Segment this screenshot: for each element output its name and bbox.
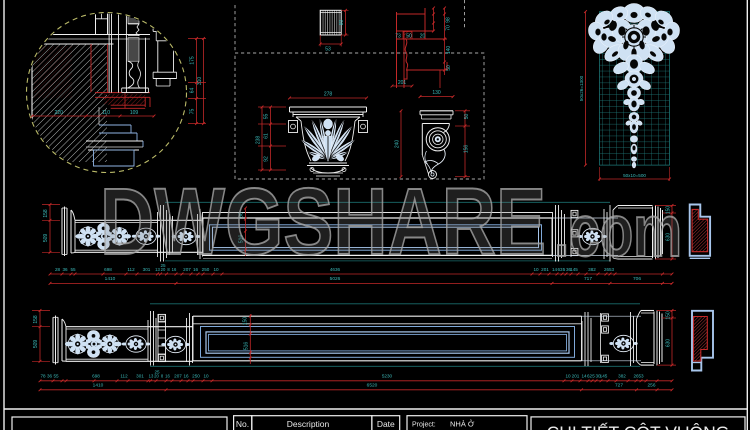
svg-text:10: 10 <box>565 374 571 379</box>
svg-text:509: 509 <box>43 234 49 243</box>
svg-text:717: 717 <box>584 276 592 282</box>
svg-text:50: 50 <box>464 114 470 120</box>
svg-text:64: 64 <box>190 88 196 94</box>
svg-text:175: 175 <box>190 56 196 65</box>
svg-text:110: 110 <box>102 110 110 116</box>
svg-text:310: 310 <box>197 77 203 86</box>
svg-text:50: 50 <box>406 34 412 40</box>
svg-text:220: 220 <box>55 110 64 116</box>
svg-text:DWGSHARE: DWGSHARE <box>100 169 546 275</box>
svg-text:53: 53 <box>325 47 331 53</box>
svg-text:1410: 1410 <box>105 276 116 282</box>
svg-text:98: 98 <box>446 17 452 23</box>
svg-text:150: 150 <box>666 311 672 320</box>
svg-text:NHÀ Ở: NHÀ Ở <box>450 420 475 429</box>
svg-text:509: 509 <box>33 340 39 349</box>
svg-text:20: 20 <box>154 374 159 379</box>
svg-text:75: 75 <box>190 109 196 115</box>
svg-text:61: 61 <box>264 133 270 139</box>
svg-text:130: 130 <box>432 90 441 96</box>
svg-text:250: 250 <box>192 374 200 379</box>
svg-text:6520: 6520 <box>367 382 378 388</box>
svg-text:36: 36 <box>47 374 53 379</box>
svg-text:5026: 5026 <box>330 276 341 282</box>
svg-text:278: 278 <box>324 92 333 98</box>
svg-text:156: 156 <box>464 145 470 154</box>
svg-text:112: 112 <box>120 374 128 379</box>
svg-text:10: 10 <box>203 374 209 379</box>
svg-text:706: 706 <box>633 276 641 282</box>
svg-text:16: 16 <box>165 374 170 379</box>
svg-text:516: 516 <box>244 342 250 351</box>
svg-text:16: 16 <box>183 374 189 379</box>
svg-text:CHI TIẾT CỘT VUÔNG: CHI TIẾT CỘT VUÔNG <box>547 422 730 430</box>
svg-text:28: 28 <box>55 267 61 272</box>
svg-text:727: 727 <box>615 382 623 388</box>
svg-text:50x10=500: 50x10=500 <box>623 173 646 178</box>
svg-text:5230: 5230 <box>382 374 393 379</box>
svg-text:73: 73 <box>395 34 401 40</box>
svg-text:630: 630 <box>666 339 672 348</box>
svg-text:No.: No. <box>236 419 249 429</box>
svg-text:20: 20 <box>420 34 426 40</box>
svg-text:145: 145 <box>600 374 608 379</box>
svg-text:158: 158 <box>43 209 49 218</box>
svg-text:55: 55 <box>264 114 270 120</box>
svg-text:53: 53 <box>638 374 644 379</box>
svg-text:.com: .com <box>554 191 682 272</box>
svg-text:50x26=1300: 50x26=1300 <box>579 75 584 101</box>
svg-text:238: 238 <box>256 136 262 145</box>
svg-text:201: 201 <box>572 374 580 379</box>
svg-text:55: 55 <box>53 374 59 379</box>
svg-text:92: 92 <box>264 156 270 162</box>
svg-text:55: 55 <box>70 267 76 272</box>
svg-text:1410: 1410 <box>93 382 104 388</box>
svg-text:150: 150 <box>243 317 249 326</box>
svg-text:80: 80 <box>339 20 345 26</box>
svg-text:50: 50 <box>446 65 452 71</box>
svg-text:301: 301 <box>136 374 144 379</box>
svg-text:240: 240 <box>395 140 401 149</box>
svg-text:Description: Description <box>287 419 330 429</box>
svg-text:109: 109 <box>130 110 139 116</box>
svg-text:158: 158 <box>33 315 39 324</box>
svg-text:201: 201 <box>398 80 407 86</box>
svg-text:698: 698 <box>92 374 100 379</box>
svg-text:140: 140 <box>446 46 452 55</box>
svg-text:Project:: Project: <box>412 422 436 429</box>
svg-text:382: 382 <box>618 374 626 379</box>
svg-text:Date: Date <box>377 419 395 429</box>
svg-text:70: 70 <box>446 25 452 31</box>
svg-text:36: 36 <box>62 267 68 272</box>
svg-text:78: 78 <box>40 374 46 379</box>
svg-text:207: 207 <box>174 374 182 379</box>
svg-text:256: 256 <box>647 382 655 388</box>
